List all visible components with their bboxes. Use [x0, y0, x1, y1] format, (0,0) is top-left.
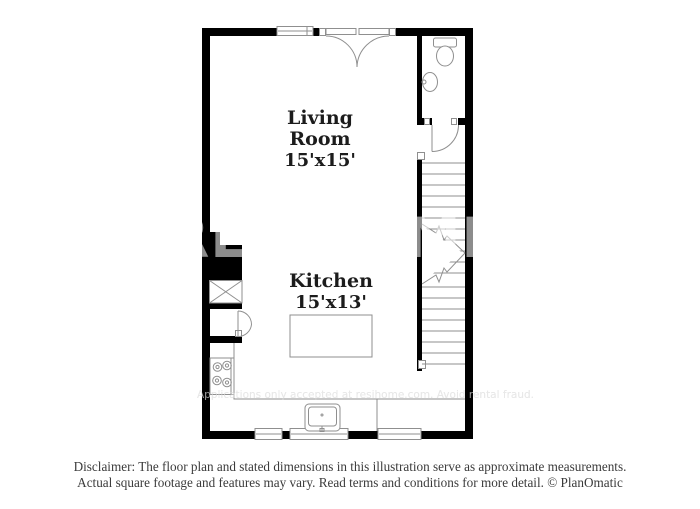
water-heater-icon — [210, 281, 243, 304]
bifold-closet-door-icon — [238, 311, 252, 337]
window-top — [277, 27, 313, 36]
window-bottom-1 — [255, 429, 282, 440]
kitchen-sink-icon — [305, 404, 340, 432]
french-doors-icon — [326, 29, 389, 68]
kitchen-name: Kitchen — [289, 270, 373, 292]
disclaimer-text: Disclaimer: The floor plan and stated di… — [0, 459, 700, 491]
bathroom-sink-icon — [422, 73, 438, 92]
toilet-icon — [434, 38, 457, 66]
disclaimer-line2: Actual square footage and features may v… — [0, 475, 700, 491]
kitchen-island-icon — [290, 315, 372, 357]
living-room-dimensions: 15'x15' — [284, 150, 356, 171]
watermark-small-overlay: Applications only accepted at resihome.c… — [197, 389, 534, 401]
kitchen-label: Kitchen 15'x13' — [270, 271, 392, 313]
bathroom-door-icon — [432, 125, 459, 152]
watermark-large: RESIHOME — [167, 206, 500, 270]
disclaimer-line1: Disclaimer: The floor plan and stated di… — [0, 459, 700, 475]
living-room-label: Living Room 15'x15' — [278, 108, 362, 171]
window-bottom-3 — [378, 429, 421, 440]
living-room-name: Living Room — [287, 107, 353, 150]
kitchen-dimensions: 15'x13' — [295, 292, 367, 313]
floor-plan-page: Living Room 15'x15' Kitchen 15'x13' RESI… — [0, 0, 700, 509]
